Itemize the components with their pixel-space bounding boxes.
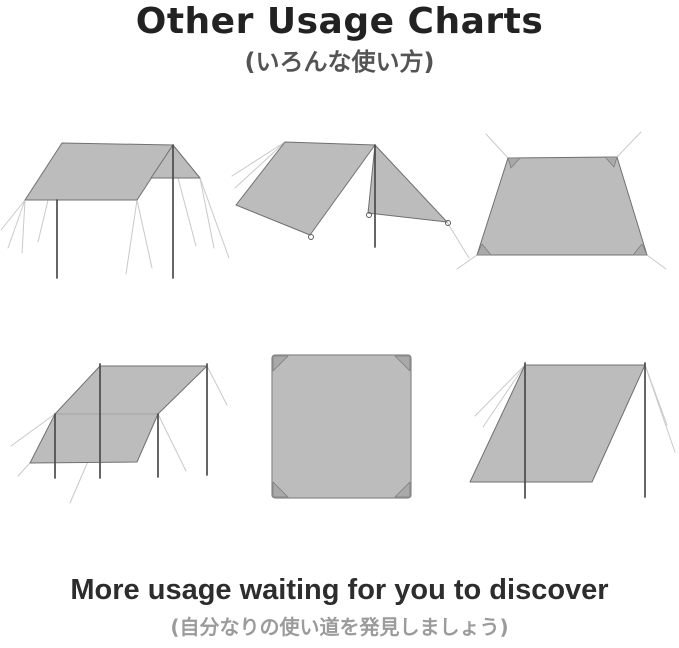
lean-to-tarp-illustration <box>455 350 679 510</box>
a-frame-tarp-illustration <box>230 128 470 268</box>
square-tarp-illustration <box>262 348 422 508</box>
footer-subtitle-japanese: (自分なりの使い道を発見しましょう) <box>0 614 679 640</box>
ground-sheet-illustration <box>450 120 679 280</box>
tarp-right-panel <box>368 145 447 222</box>
page-title: Other Usage Charts <box>0 0 679 43</box>
diagram-awning-tarp <box>10 345 240 510</box>
awning-tarp-illustration <box>10 345 240 510</box>
diagram-lean-to-tarp <box>455 350 679 510</box>
page: Other Usage Charts (いろんな使い方) <box>0 0 679 648</box>
footer: More usage waiting for you to discover (… <box>0 572 679 640</box>
tarp-left-panel <box>236 142 375 235</box>
tarp-ground-panel <box>477 157 647 255</box>
diagram-a-frame-tarp <box>230 128 470 268</box>
tarp-roof-panel <box>25 143 173 200</box>
diagram-square-tarp <box>262 348 422 508</box>
page-subtitle-japanese: (いろんな使い方) <box>0 47 679 77</box>
header: Other Usage Charts (いろんな使い方) <box>0 0 679 77</box>
tarp-lean-panel <box>470 365 645 482</box>
flat-canopy-tarp-illustration <box>0 130 235 285</box>
tarp-awning-panel <box>30 366 207 463</box>
tarp-square-panel <box>272 355 411 498</box>
diagram-ground-sheet <box>450 120 679 280</box>
diagram-flat-canopy-tarp <box>0 130 235 285</box>
footer-heading: More usage waiting for you to discover <box>0 572 679 608</box>
